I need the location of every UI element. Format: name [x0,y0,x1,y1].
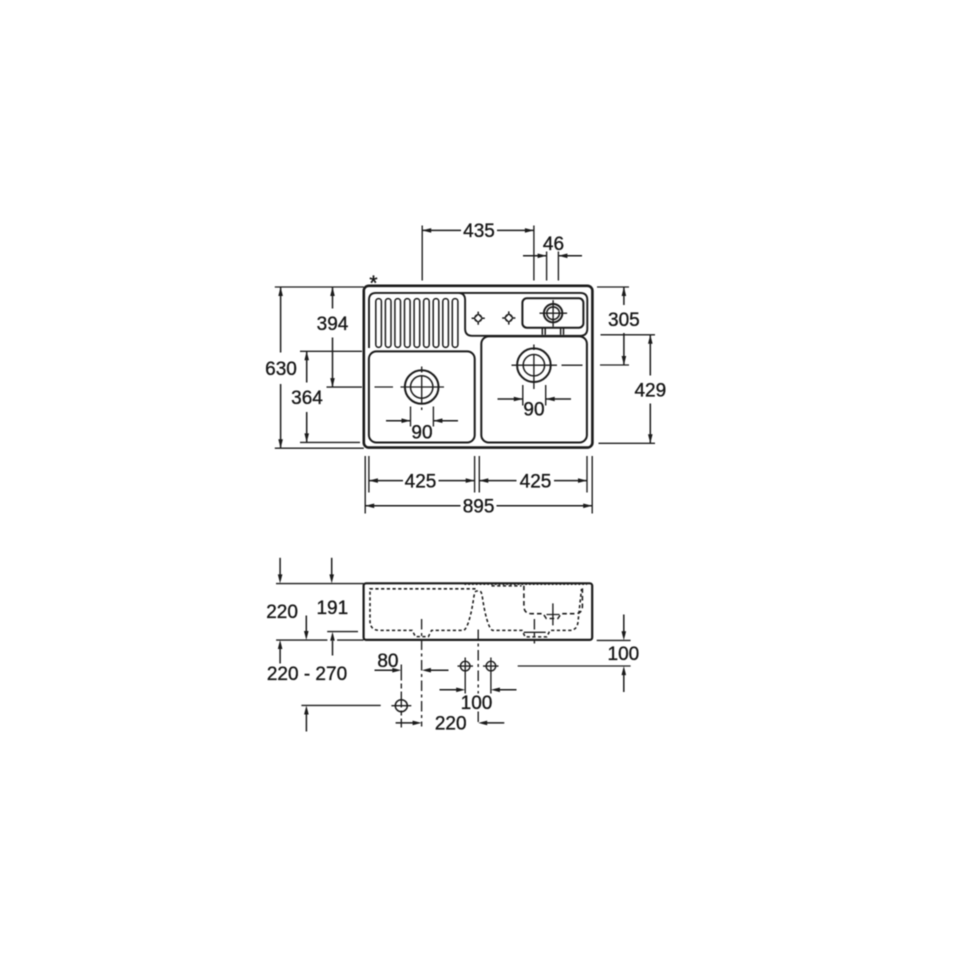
svg-text:425: 425 [405,471,437,492]
svg-text:425: 425 [520,471,552,492]
svg-text:90: 90 [411,422,432,443]
svg-text:100: 100 [461,693,493,714]
svg-text:100: 100 [608,644,640,665]
svg-text:364: 364 [291,388,323,409]
svg-text:895: 895 [463,497,495,518]
svg-text:394: 394 [317,314,349,335]
svg-text:90: 90 [523,400,544,421]
svg-text:46: 46 [543,234,564,255]
svg-text:305: 305 [608,310,640,331]
svg-text:*: * [369,272,377,295]
svg-text:220: 220 [266,602,298,623]
svg-text:191: 191 [316,598,348,619]
svg-text:429: 429 [634,380,666,401]
svg-text:435: 435 [463,221,495,242]
svg-text:220 - 270: 220 - 270 [267,664,347,685]
svg-text:630: 630 [265,359,297,380]
svg-text:220: 220 [435,714,467,735]
